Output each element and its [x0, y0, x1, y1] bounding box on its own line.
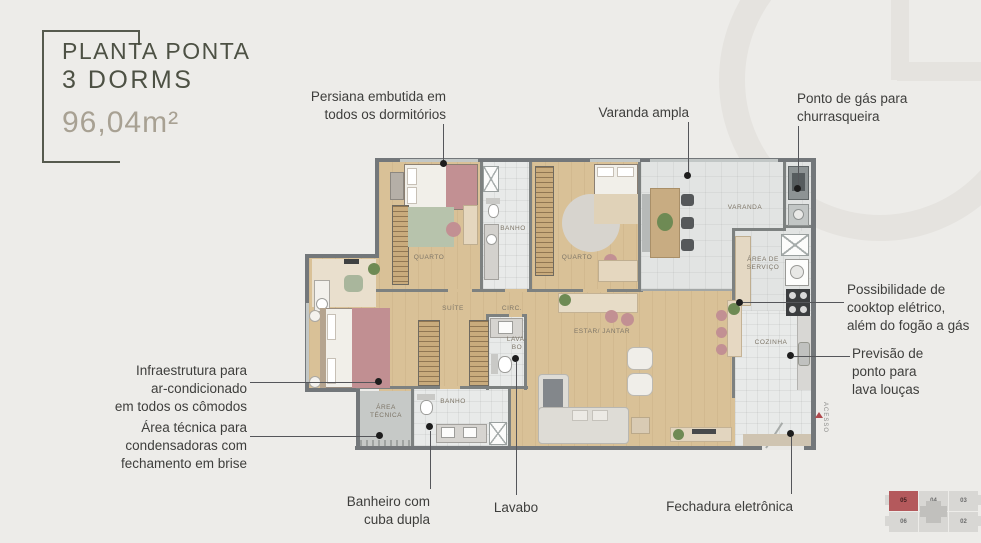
callout-dot-lavabo	[512, 355, 519, 362]
bed-blanket	[594, 194, 638, 224]
keyplan-unit-03: 03	[949, 491, 978, 511]
callout-dot-lava-loucas	[787, 352, 794, 359]
tv-icon	[692, 429, 716, 434]
window-varanda	[650, 159, 778, 162]
plant-icon	[559, 294, 571, 306]
pillow	[327, 314, 336, 340]
armchair-icon	[627, 373, 653, 396]
callout-persiana: Persiana embutida em todos os dormitório…	[294, 88, 446, 124]
callout-ar-condicionado: Infraestrutura para ar-condicionado em t…	[75, 362, 247, 415]
wall-segment	[305, 388, 360, 392]
room-label-lavabo: LAVA- BO	[507, 336, 527, 353]
wall-segment	[375, 158, 379, 258]
wardrobe-circ	[469, 320, 489, 386]
room-label-cozinha: COZINHA	[755, 339, 788, 347]
door-opening	[583, 289, 607, 292]
callout-fechadura: Fechadura eletrônica	[640, 498, 793, 516]
kitchen-sink-icon	[798, 342, 810, 366]
leader-line	[794, 356, 850, 357]
room-label-suite: SUÍTE	[442, 305, 464, 313]
leader-line	[430, 431, 431, 489]
wall-segment	[529, 162, 532, 289]
room-label-acesso: ACESSO	[822, 402, 828, 446]
callout-cooktop: Possibilidade de cooktop elétrico, além …	[847, 281, 979, 334]
room-label-estar-jantar: ESTAR/ JANTAR	[574, 328, 630, 336]
sofa-cushion	[592, 410, 608, 421]
laundry-tank-icon	[781, 234, 809, 256]
vanity-banho1	[484, 224, 499, 280]
unit-area-value: 96,04m²	[62, 106, 179, 140]
side-table	[631, 417, 650, 434]
stool-icon	[716, 344, 727, 355]
chair-icon	[621, 313, 634, 326]
keyplan-unit-05-highlighted: 05	[889, 491, 918, 511]
keyplan-core	[920, 506, 947, 517]
stool-icon	[716, 327, 727, 338]
leader-line	[791, 437, 792, 494]
stool-icon	[716, 310, 727, 321]
bed-blanket	[446, 165, 477, 209]
bed-headboard	[320, 308, 326, 388]
pillow	[407, 168, 417, 185]
callout-area-tecnica: Área técnica para condensadoras com fech…	[75, 419, 247, 472]
plant-icon	[368, 263, 380, 275]
watermark-logo-horizontal-bar	[897, 62, 981, 81]
desk-quarto1	[463, 205, 478, 245]
room-label-area-servico: ÁREA DE SERVIÇO	[747, 256, 780, 273]
page-title-line2: 3 DORMS	[62, 66, 193, 95]
dresser-icon	[390, 172, 404, 200]
sink-icon	[441, 427, 455, 438]
chair-icon	[446, 222, 461, 237]
wardrobe-suite	[418, 320, 440, 386]
wardrobe-quarto2	[535, 166, 554, 276]
leader-line	[250, 436, 379, 437]
wall-segment	[305, 254, 379, 258]
building-keyplan: 05 04 03 06 01 02	[885, 489, 981, 537]
keyplan-unit-02: 02	[949, 512, 978, 532]
plant-icon	[673, 429, 684, 440]
entry-door-opening	[762, 446, 804, 450]
bed-blanket	[352, 308, 390, 388]
room-label-area-tecnica: ÁREA TÉCNICA	[370, 404, 402, 421]
wall-segment	[783, 162, 786, 225]
sink-icon	[486, 234, 497, 245]
callout-banheiro: Banheiro com cuba dupla	[300, 493, 430, 529]
wall-segment	[411, 389, 414, 446]
entry-sideboard	[743, 434, 811, 446]
plant-icon	[657, 213, 673, 231]
wall-segment	[355, 446, 816, 450]
pillow	[597, 167, 614, 177]
leader-line	[250, 382, 378, 383]
callout-dot-banheiro	[426, 423, 433, 430]
chair-icon	[681, 217, 694, 229]
callout-dot-area-tecnica	[376, 432, 383, 439]
callout-gas: Ponto de gás para churrasqueira	[797, 90, 957, 126]
room-label-circ: CIRC.	[502, 305, 522, 313]
callout-lavabo: Lavabo	[440, 499, 592, 517]
keyplan-unit-06: 06	[889, 512, 918, 532]
door-opening	[448, 289, 472, 292]
wall-segment	[638, 162, 641, 289]
wall-segment	[508, 389, 511, 446]
toilet-icon	[420, 400, 433, 415]
door-opening	[440, 386, 460, 389]
wardrobe-quarto1	[392, 205, 409, 285]
room-label-quarto2: QUARTO	[562, 254, 593, 262]
callout-varanda-ampla: Varanda ampla	[539, 104, 689, 122]
desk-quarto2	[598, 260, 638, 282]
room-label-quarto1: QUARTO	[414, 254, 445, 262]
sink-icon	[498, 321, 513, 334]
leader-line	[798, 126, 799, 186]
leader-line	[743, 302, 844, 303]
toilet-icon	[488, 204, 499, 218]
wall-segment	[732, 354, 735, 398]
shower-icon	[483, 166, 499, 192]
callout-dot-ar	[375, 378, 382, 385]
room-label-banho2: BANHO	[440, 398, 466, 406]
floorplan-page: PLANTA PONTA 3 DORMS 96,04m²	[0, 0, 981, 543]
chair-icon	[605, 310, 618, 323]
chair-icon	[681, 194, 694, 206]
callout-dot-fechadura	[787, 430, 794, 437]
armchair-icon	[344, 275, 363, 292]
door-opening	[505, 289, 527, 292]
shower-icon	[489, 422, 507, 445]
armchair-icon	[627, 347, 653, 370]
door-opening	[509, 314, 522, 317]
chair-icon	[681, 239, 694, 251]
room-label-banho1: BANHO	[500, 225, 526, 233]
bench-icon	[642, 194, 650, 252]
toilet-icon	[498, 356, 512, 373]
sink-icon	[463, 427, 477, 438]
washer-door	[790, 265, 804, 279]
sofa-throw	[543, 379, 563, 407]
callout-dot-varanda	[684, 172, 691, 179]
sofa-cushion	[572, 410, 588, 421]
sink-icon	[793, 209, 804, 220]
pillow	[327, 358, 336, 384]
brise-slats	[360, 440, 411, 446]
wall-segment	[811, 158, 816, 450]
pillow	[617, 167, 634, 177]
callout-dot-persiana	[440, 160, 447, 167]
leader-line	[516, 362, 517, 495]
leader-line	[688, 122, 689, 175]
callout-dot-cooktop	[736, 299, 743, 306]
room-label-varanda: VARANDA	[728, 204, 762, 212]
floor-plan: QUARTO BANHO QUARTO VARANDA ÁREA DE SERV…	[300, 158, 816, 454]
tv-icon	[344, 259, 359, 264]
pillow	[407, 187, 417, 204]
wall-segment	[732, 228, 786, 231]
callout-dot-gas	[794, 185, 801, 192]
leader-line	[443, 124, 444, 162]
toilet-tank	[491, 354, 498, 374]
callout-lava-loucas: Previsão de ponto para lava louças	[852, 345, 972, 398]
sliding-door-varanda	[641, 289, 740, 291]
window-quarto1	[400, 159, 478, 162]
page-title-line1: PLANTA PONTA	[62, 38, 250, 65]
window-quarto2	[590, 159, 640, 162]
